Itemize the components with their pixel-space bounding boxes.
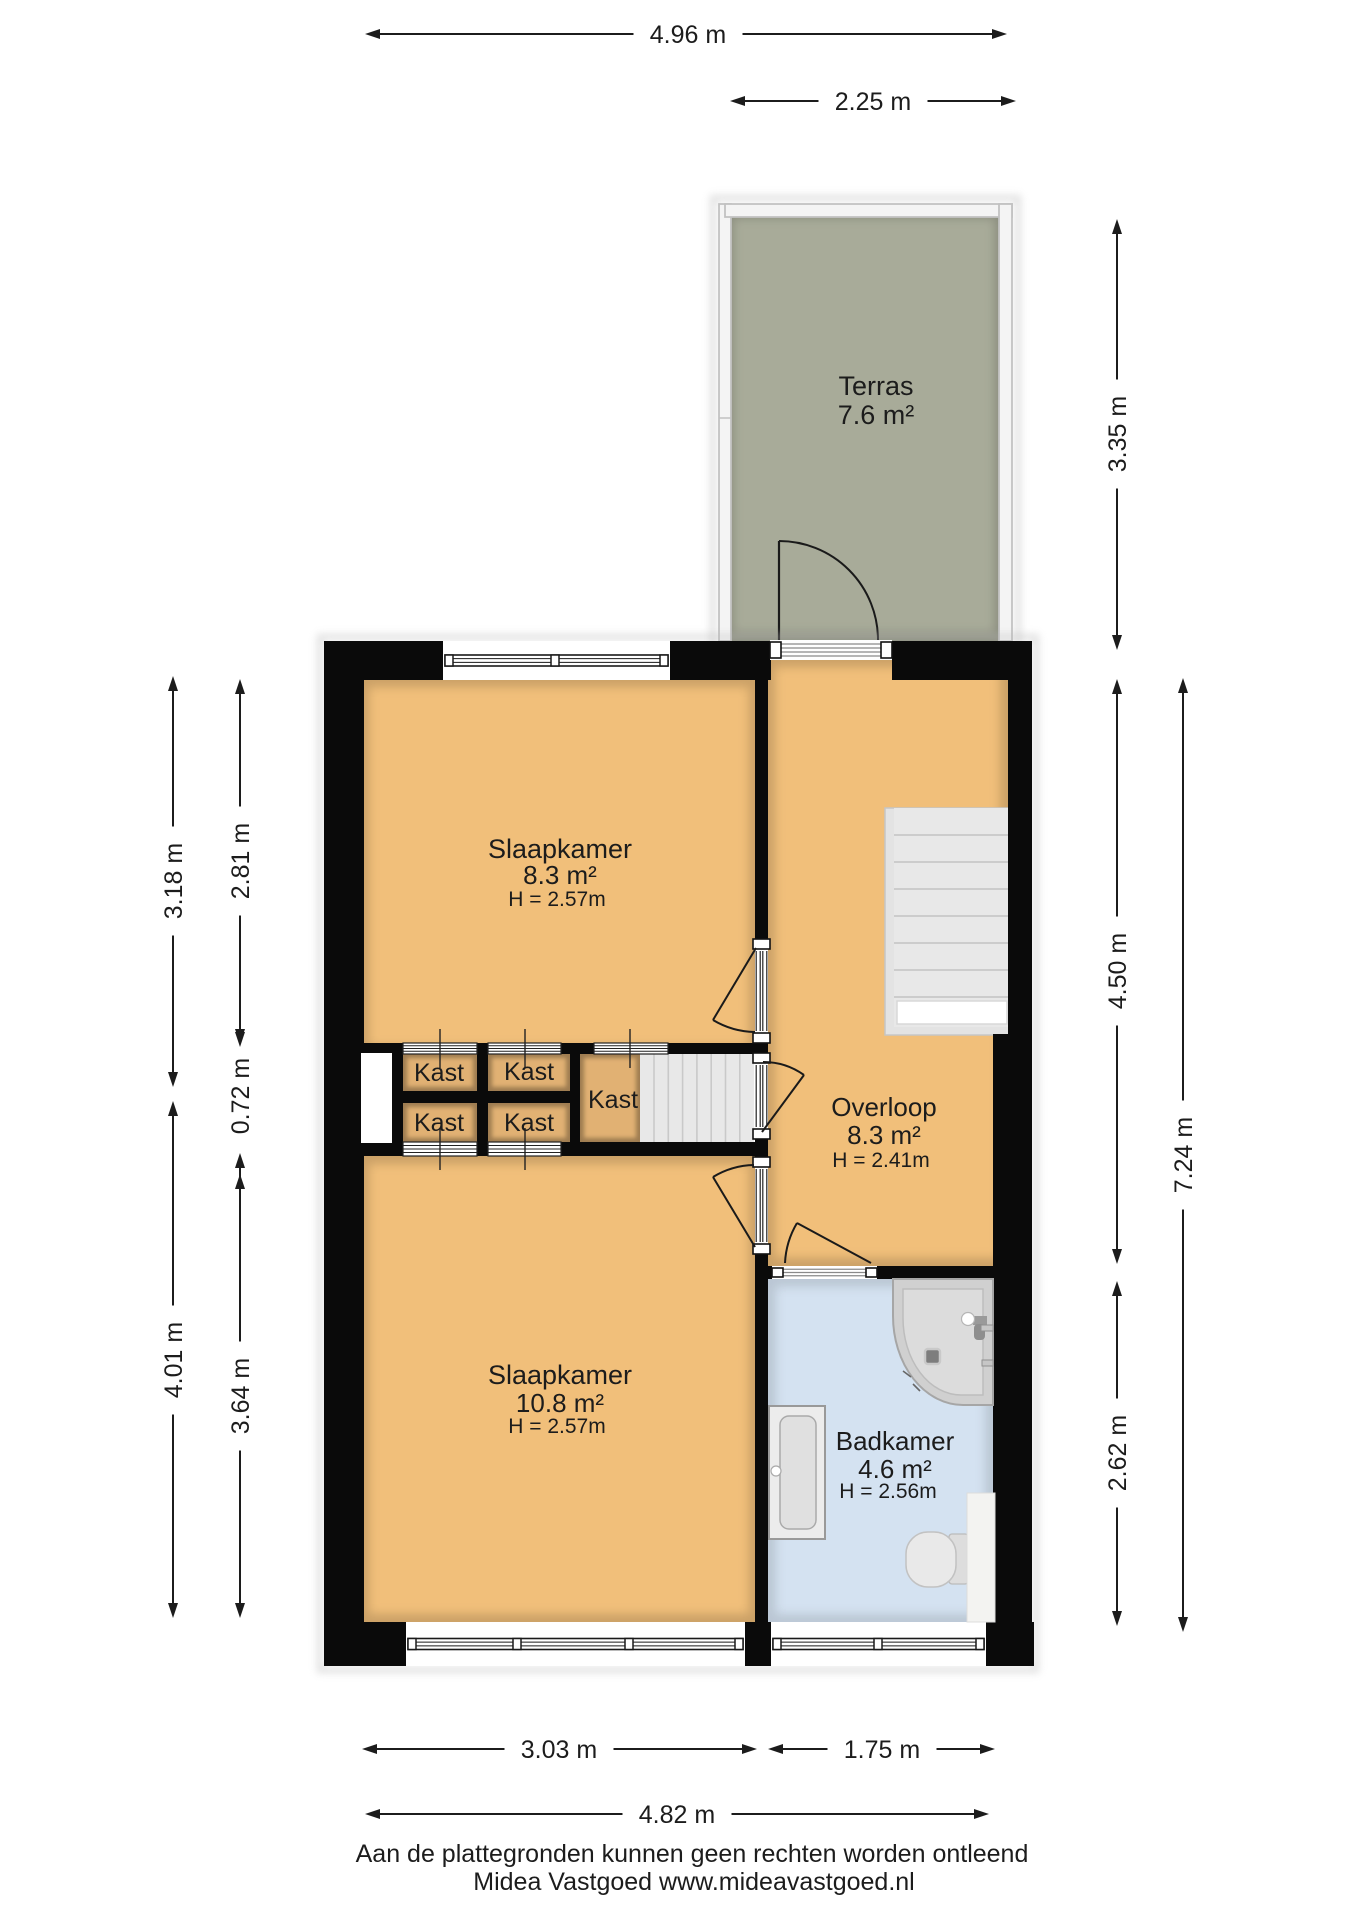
svg-text:4.96 m: 4.96 m [650, 21, 726, 49]
svg-text:H = 2.57m: H = 2.57m [508, 888, 605, 911]
svg-text:1.75 m: 1.75 m [844, 1736, 920, 1764]
svg-text:3.35 m: 3.35 m [1104, 396, 1132, 472]
svg-text:Kast: Kast [504, 1058, 554, 1086]
svg-text:4.82 m: 4.82 m [639, 1801, 715, 1829]
svg-text:Kast: Kast [588, 1086, 638, 1114]
svg-text:Kast: Kast [504, 1109, 554, 1137]
svg-text:2.62 m: 2.62 m [1104, 1415, 1132, 1491]
svg-text:3.03 m: 3.03 m [521, 1736, 597, 1764]
svg-text:2.25 m: 2.25 m [835, 88, 911, 116]
svg-text:3.64 m: 3.64 m [227, 1358, 255, 1434]
svg-text:Badkamer: Badkamer [836, 1426, 955, 1456]
svg-text:H = 2.57m: H = 2.57m [508, 1415, 605, 1438]
svg-text:Overloop: Overloop [831, 1092, 937, 1122]
svg-text:H = 2.41m: H = 2.41m [832, 1149, 929, 1172]
svg-text:7.6 m²: 7.6 m² [838, 400, 915, 430]
svg-text:4.01 m: 4.01 m [160, 1322, 188, 1398]
svg-text:8.3 m²: 8.3 m² [847, 1120, 921, 1150]
svg-text:7.24 m: 7.24 m [1170, 1117, 1198, 1193]
svg-text:Terras: Terras [838, 371, 913, 401]
svg-text:Aan de plattegronden kunnen ge: Aan de plattegronden kunnen geen rechten… [356, 1840, 1029, 1868]
svg-text:H = 2.56m: H = 2.56m [839, 1480, 936, 1503]
svg-text:Midea Vastgoed www.mideavastgo: Midea Vastgoed www.mideavastgoed.nl [473, 1868, 914, 1896]
svg-text:10.8 m²: 10.8 m² [516, 1388, 604, 1418]
svg-text:4.50 m: 4.50 m [1104, 933, 1132, 1009]
svg-text:Kast: Kast [414, 1059, 464, 1087]
svg-text:Slaapkamer: Slaapkamer [488, 1360, 632, 1390]
svg-text:0.72 m: 0.72 m [227, 1058, 255, 1134]
svg-text:Kast: Kast [414, 1109, 464, 1137]
svg-text:2.81 m: 2.81 m [227, 823, 255, 899]
svg-text:8.3 m²: 8.3 m² [523, 860, 597, 890]
svg-text:3.18 m: 3.18 m [160, 843, 188, 919]
